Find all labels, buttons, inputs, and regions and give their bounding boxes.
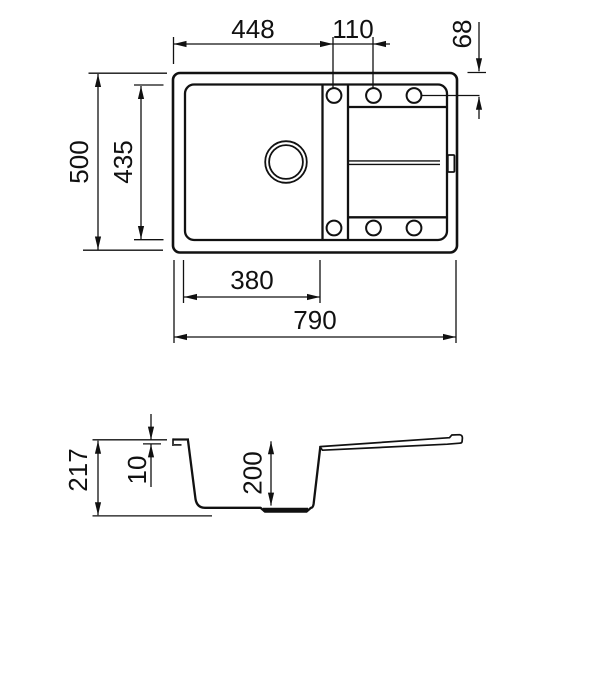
arrowhead <box>184 294 197 300</box>
dim-790: 790 <box>174 260 456 343</box>
sink-outer-edge <box>173 73 457 253</box>
dimension-label: 110 <box>332 14 373 44</box>
arrowhead <box>95 441 101 454</box>
dimension-label: 10 <box>122 456 152 485</box>
drain-outer-circle <box>265 141 307 183</box>
faucet-hole-top-3 <box>407 88 422 103</box>
arrowhead <box>148 444 154 457</box>
arrowhead <box>95 237 101 250</box>
faucet-hole-top-1 <box>327 88 342 103</box>
dim-435: 435 <box>108 85 164 240</box>
faucet-hole-bottom-1 <box>327 221 342 236</box>
dimension-label: 500 <box>64 140 94 183</box>
arrowhead <box>268 493 274 506</box>
faucet-hole-bottom-2 <box>366 221 381 236</box>
arrowhead <box>320 41 333 47</box>
dimension-label: 217 <box>63 448 93 491</box>
dimension-label: 790 <box>293 305 336 335</box>
drawing-canvas: 448 110 68 500 4 <box>0 0 600 689</box>
dim-68: 68 <box>422 20 487 119</box>
dimension-label: 380 <box>230 265 273 295</box>
arrowhead <box>138 86 144 99</box>
arrowhead <box>95 502 101 515</box>
arrowhead <box>148 427 154 440</box>
side-view: 217 10 200 <box>63 414 462 516</box>
sink-technical-drawing: 448 110 68 500 4 <box>0 0 600 689</box>
arrowhead <box>443 334 456 340</box>
drainboard-section-outline <box>320 435 462 451</box>
dimension-label: 200 <box>238 451 268 494</box>
arrowhead <box>373 41 386 47</box>
dim-380: 380 <box>184 260 321 303</box>
dimension-label: 448 <box>231 14 274 44</box>
faucet-hole-top-2 <box>366 88 381 103</box>
dimension-label: 435 <box>108 140 138 183</box>
arrowhead <box>307 294 320 300</box>
arrowhead <box>174 41 187 47</box>
top-view: 448 110 68 500 4 <box>64 14 486 343</box>
drain-inner-circle <box>269 145 303 179</box>
arrowhead <box>476 58 482 71</box>
faucet-hole-bottom-3 <box>407 221 422 236</box>
dim-448-110: 448 110 <box>174 14 391 88</box>
arrowhead <box>268 441 274 454</box>
arrowhead <box>476 97 482 110</box>
overflow-notch <box>448 155 455 172</box>
arrowhead <box>95 74 101 87</box>
arrowhead <box>138 226 144 239</box>
dimension-label: 68 <box>447 20 477 49</box>
dim-200: 200 <box>238 441 275 505</box>
arrowhead <box>174 334 187 340</box>
dim-10: 10 <box>122 414 161 487</box>
